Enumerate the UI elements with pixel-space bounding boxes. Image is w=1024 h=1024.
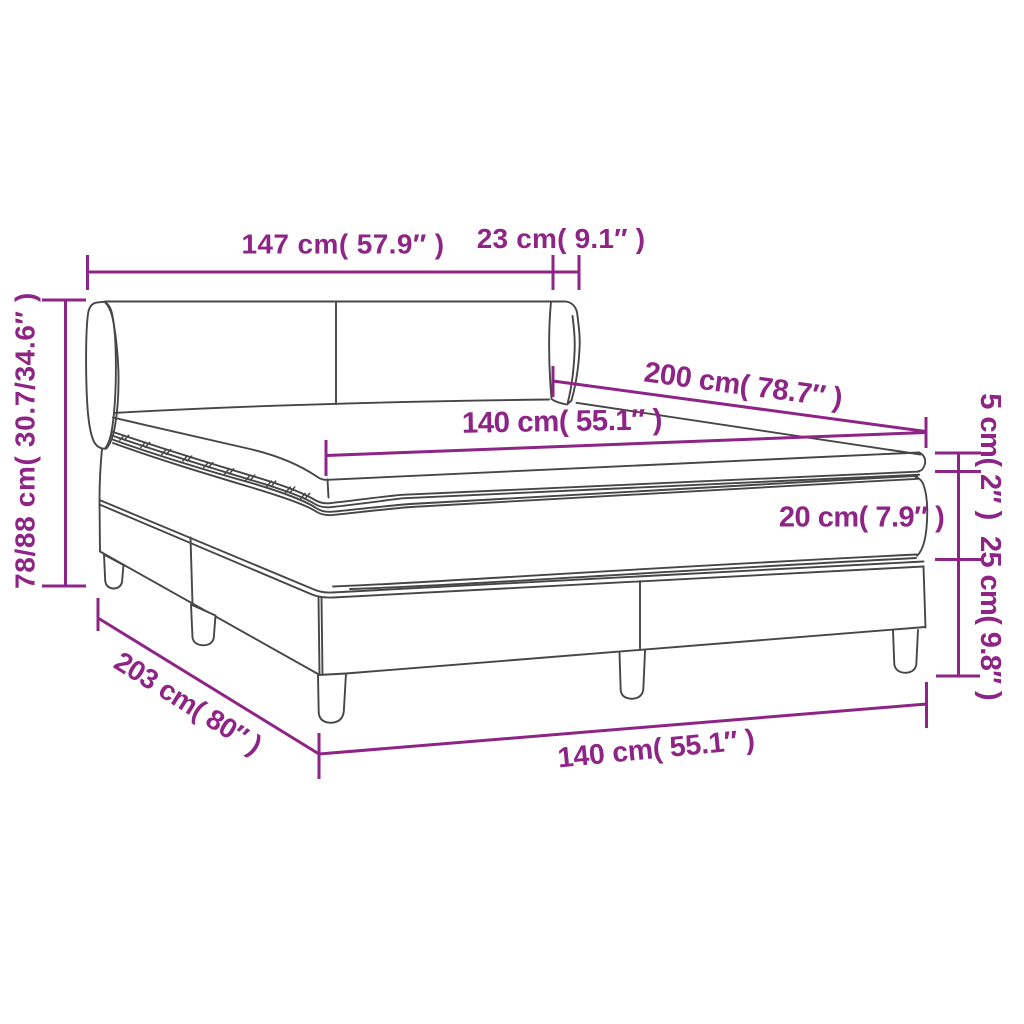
svg-text:140 cm( 55.1″ ): 140 cm( 55.1″ ) [461, 403, 662, 439]
svg-text:20 cm( 7.9″ ): 20 cm( 7.9″ ) [779, 501, 944, 533]
svg-text:23 cm( 9.1″ ): 23 cm( 9.1″ ) [477, 223, 646, 254]
svg-text:25 cm( 9.8″ ): 25 cm( 9.8″ ) [974, 536, 1006, 700]
svg-text:147 cm( 57.9″ ): 147 cm( 57.9″ ) [241, 229, 444, 260]
svg-text:5 cm( 2″ ): 5 cm( 2″ ) [974, 393, 1006, 520]
svg-text:78/88 cm( 30.7/34.6″ ): 78/88 cm( 30.7/34.6″ ) [10, 292, 41, 589]
